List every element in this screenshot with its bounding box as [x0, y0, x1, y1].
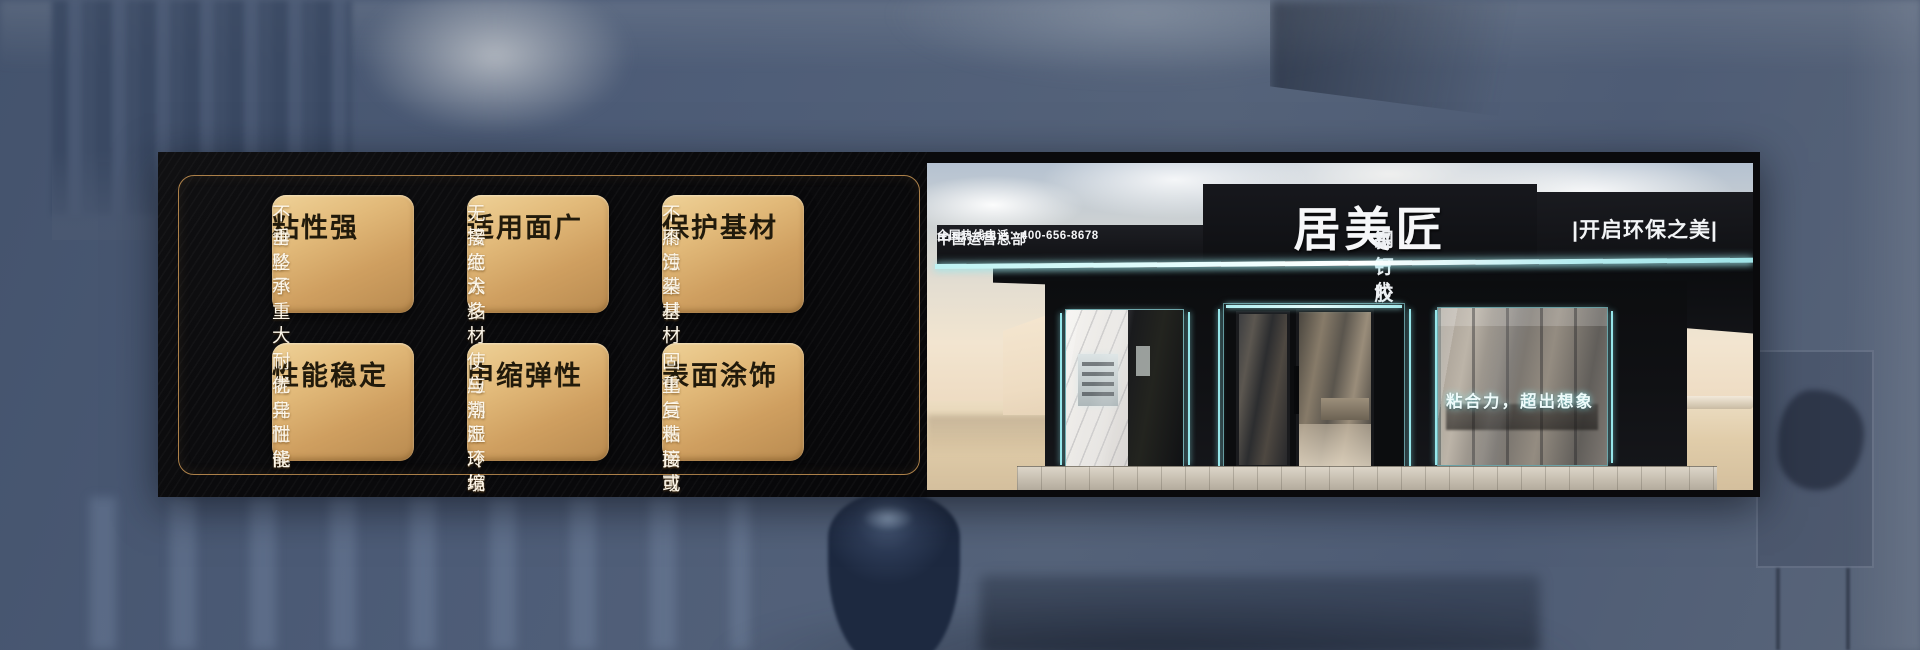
- bg-shelf-leg: [1776, 568, 1780, 650]
- hotline-number: 全国热线电话：400-656-8678: [937, 227, 1099, 243]
- product-display-rows: [1082, 362, 1114, 398]
- feature-card-adhesion: 粘性强 不滑移不 垂坠承重大: [272, 195, 414, 313]
- neon-pillar-light: [1060, 313, 1062, 465]
- sand-shadow: [927, 415, 1057, 455]
- neon-pillar-light: [1409, 309, 1411, 469]
- bg-vase-highlight: [862, 505, 914, 531]
- feature-card-elasticity: 申缩弹性 使应热胀冷缩 与潮湿环境: [467, 343, 609, 461]
- neon-pillar-light: [1611, 311, 1613, 463]
- neon-pillar-light: [1435, 310, 1437, 465]
- feature-card-application: 适用面广 无需底涂粘 接绝大多材料: [467, 195, 609, 313]
- storefront-photo: 中国运营总部 全国热线电话：400-656-8678 居美匠 钢钉胶 新一代技术…: [927, 163, 1753, 490]
- pavement: [1017, 466, 1717, 490]
- sign-eco-section: |开启环保之美|: [1537, 192, 1753, 266]
- neon-pillar-light: [1218, 309, 1220, 467]
- small-poster: [1136, 346, 1150, 376]
- feature-card-protection: 保护基材 不腐蚀基材 不污染基材表面: [662, 195, 804, 313]
- neon-pillar-light: [1188, 312, 1190, 465]
- promo-banner-screenshot: 粘性强 不滑移不 垂坠承重大 适用面广 无需底涂粘 接绝大多材料 保护基材 不腐…: [0, 0, 1920, 650]
- feature-card-stability: 性能稳定 耐老化耐候 优异性能: [272, 343, 414, 461]
- window-slogan-text: 粘合力，超出想象: [1446, 388, 1606, 412]
- bg-light-blob: [330, 0, 660, 170]
- bg-shelf-leg: [1846, 568, 1850, 650]
- door-handle: [1294, 366, 1299, 414]
- entrance-doors: [1224, 304, 1404, 474]
- brand-name: 居美匠: [1294, 191, 1447, 260]
- interior-shelves: [1438, 308, 1607, 465]
- eco-slogan: |开启环保之美|: [1572, 214, 1718, 244]
- window-interior-dark: [1128, 310, 1183, 468]
- right-display-window: 粘合力，超出想象: [1438, 308, 1607, 465]
- door-neon-edge: [1226, 305, 1402, 308]
- bg-sideboard-silhouette: [980, 575, 1540, 650]
- product-banner: 粘性强 不滑移不 垂坠承重大 适用面广 无需底涂粘 接绝大多材料 保护基材 不腐…: [158, 152, 1760, 497]
- interior-floor: [1299, 424, 1371, 466]
- sign-brand-section: 居美匠 钢钉胶 新一代技术: [1203, 184, 1537, 266]
- door-leaf-left: [1236, 311, 1290, 468]
- left-display-window: [1066, 310, 1183, 468]
- interior-counter: [1321, 398, 1369, 420]
- door-leaf-right: [1296, 309, 1374, 469]
- feature-panel: 粘性强 不滑移不 垂坠承重大 适用面广 无需底涂粘 接绝大多材料 保护基材 不腐…: [158, 152, 927, 497]
- feature-card-finish: 表面涂饰 固化后表面可 重复粘接或打磨: [662, 343, 804, 461]
- sign-hq-section: 中国运营总部 全国热线电话：400-656-8678: [937, 225, 1203, 266]
